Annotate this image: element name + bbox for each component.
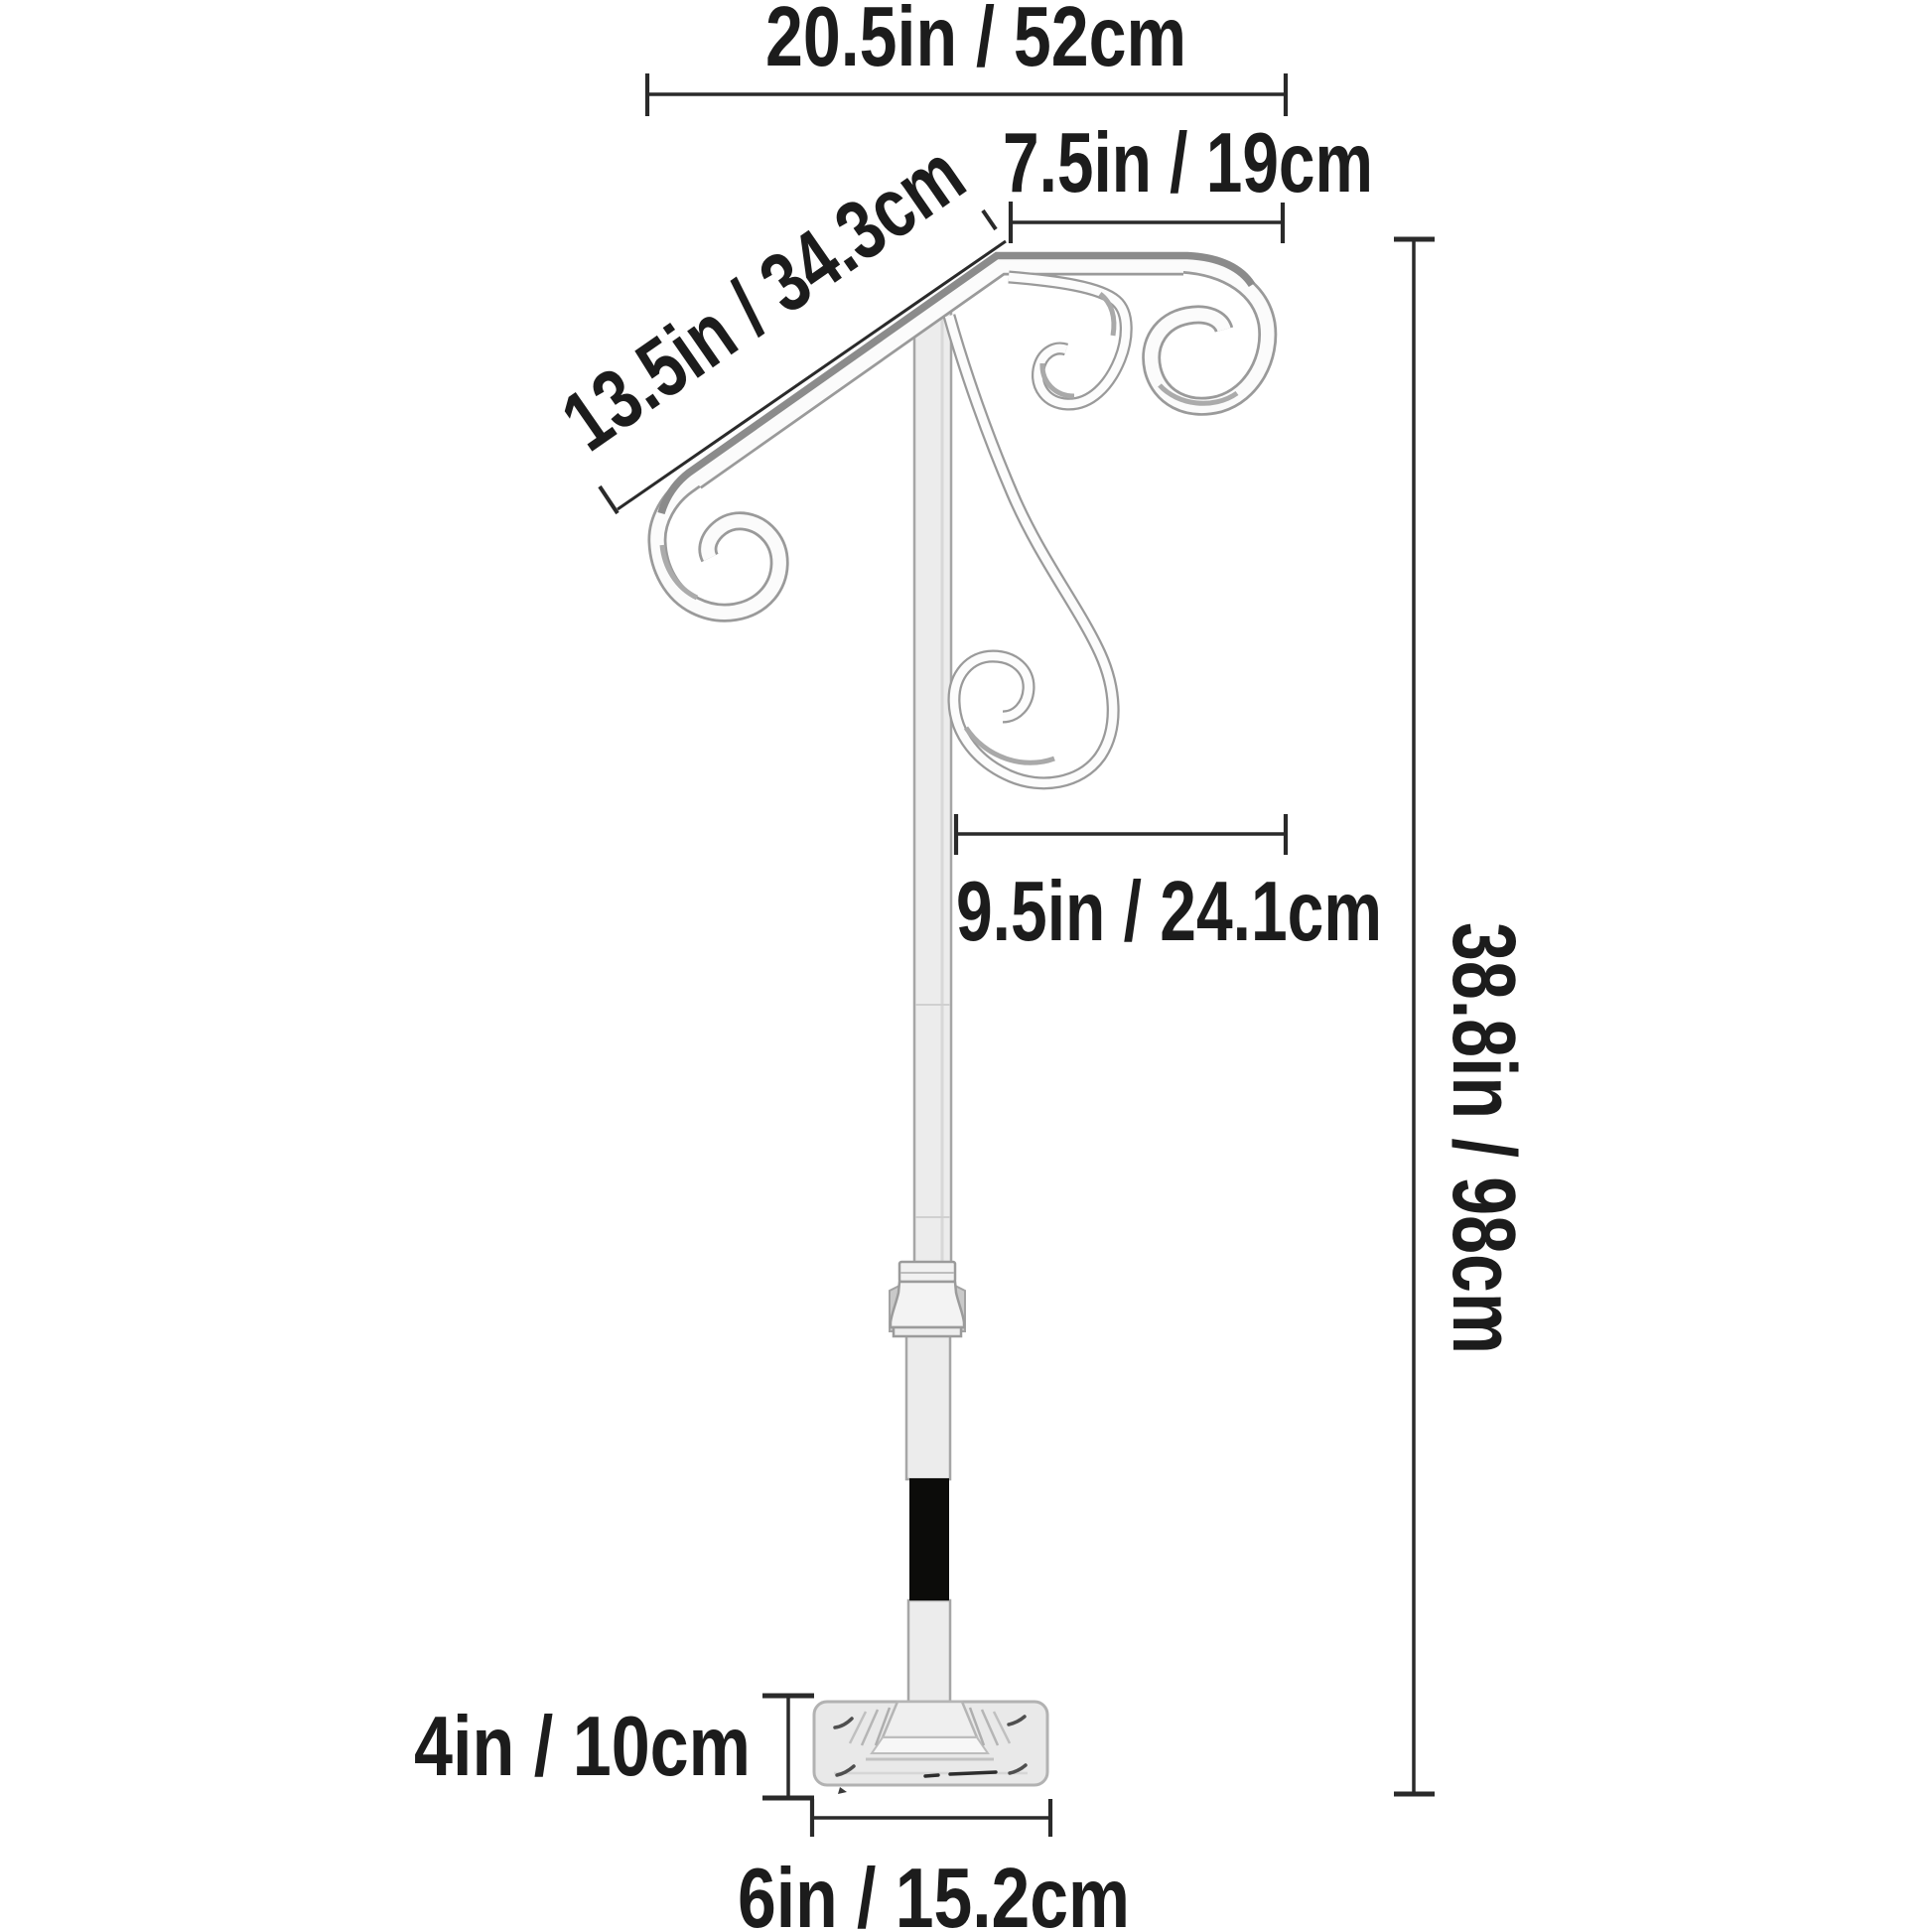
svg-text:38.8in / 98cm: 38.8in / 98cm [1434, 922, 1533, 1354]
svg-text:4in / 10cm: 4in / 10cm [414, 1700, 751, 1794]
svg-text:9.5in / 24.1cm: 9.5in / 24.1cm [956, 865, 1382, 959]
svg-text:6in / 15.2cm: 6in / 15.2cm [738, 1852, 1130, 1932]
svg-text:20.5in / 52cm: 20.5in / 52cm [765, 0, 1186, 84]
svg-text:7.5in / 19cm: 7.5in / 19cm [1003, 116, 1373, 210]
